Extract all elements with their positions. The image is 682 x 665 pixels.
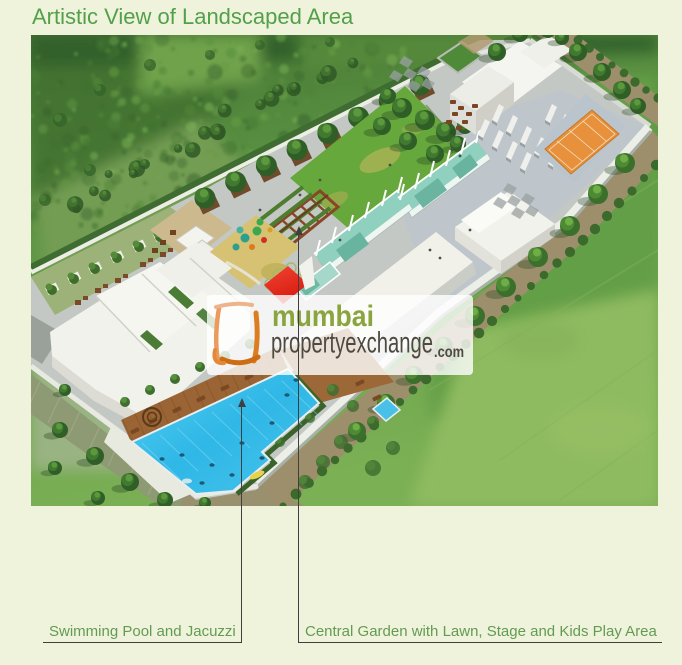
svg-text:.com: .com	[434, 344, 464, 361]
svg-text:propertyexchange: propertyexchange	[271, 327, 433, 360]
